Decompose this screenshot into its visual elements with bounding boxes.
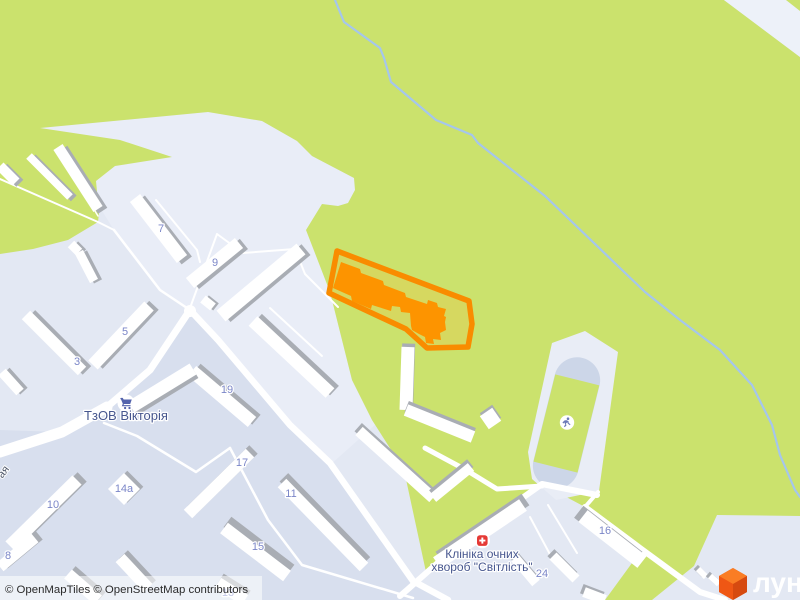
svg-text:7: 7	[158, 223, 164, 235]
svg-text:24: 24	[536, 568, 548, 580]
svg-text:Клініка очних: Клініка очних	[445, 547, 518, 561]
svg-text:ТзОВ Вікторія: ТзОВ Вікторія	[84, 408, 168, 423]
svg-text:© OpenMapTiles © OpenStreetMap: © OpenMapTiles © OpenStreetMap contribut…	[5, 584, 248, 596]
svg-text:5: 5	[122, 326, 128, 338]
svg-text:11: 11	[285, 488, 296, 500]
svg-text:3: 3	[74, 356, 80, 368]
svg-text:9: 9	[212, 257, 218, 269]
svg-text:14а: 14а	[115, 483, 134, 495]
svg-text:15: 15	[252, 541, 264, 553]
svg-text:17: 17	[236, 457, 248, 469]
svg-text:19: 19	[221, 384, 233, 396]
svg-text:10: 10	[47, 499, 59, 511]
svg-text:16: 16	[599, 525, 611, 537]
svg-text:8: 8	[5, 550, 11, 562]
svg-text:лун: лун	[753, 567, 800, 598]
svg-text:хвороб "Світлість": хвороб "Світлість"	[431, 560, 532, 574]
